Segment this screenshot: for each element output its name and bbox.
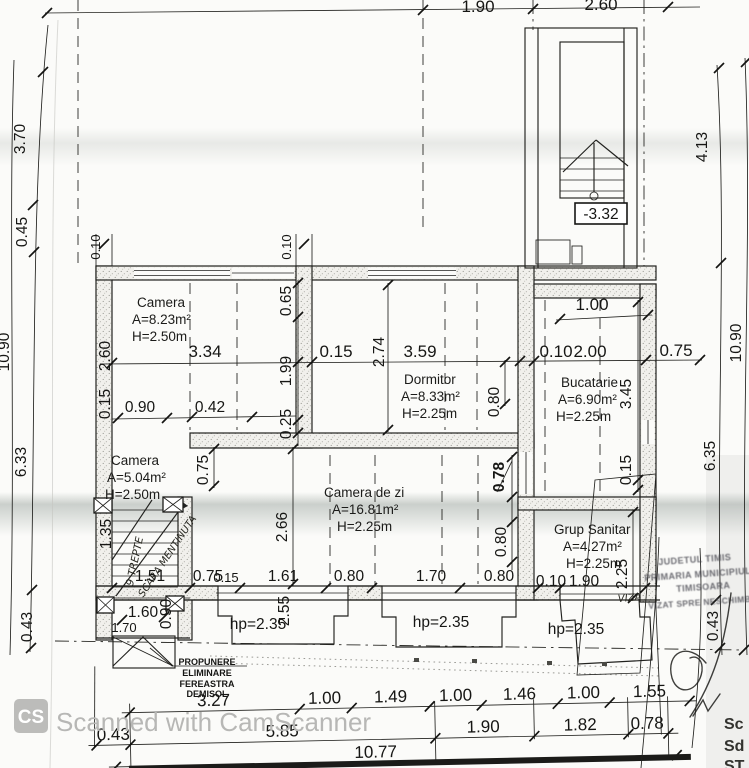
watermark-text: Scanned with CamScanner [56,707,371,737]
room-name: Dormitor [404,372,456,387]
dim-label: 0.15 [97,389,114,419]
dim-label: 0.75 [195,455,212,485]
edge-labels: Sc Sd ST [724,716,745,768]
dim-label: 1.55 [633,681,666,701]
dim-label: 2.60 [97,341,114,372]
dim-label: 1.60 [128,604,159,621]
dim-label: 1.35 [98,519,115,549]
dim-label: 2.66 [274,512,291,542]
dim-label: 0.65 [278,286,295,316]
edge-label: Sc [724,716,744,733]
dim-label: 0.10 [536,573,567,590]
dim-label: 0.43 [705,611,722,641]
dim-label: 6.35 [702,441,719,471]
dim-label: 10.90 [728,323,745,362]
room-name: Bucatarie [561,375,618,390]
dim-label: 6.33 [13,447,30,477]
dim-label: 0.80 [334,568,365,585]
dim-label: 0.15 [618,455,635,485]
room-height: H=2.25m [556,409,611,424]
dim-label: 3.59 [403,342,436,361]
dimension-lines [10,2,749,655]
dim-label: 1.70 [111,620,136,635]
level-label: -3.32 [583,206,618,223]
dim-label: 1.70 [416,568,447,585]
dim-label: 0.80 [493,527,510,558]
edge-label: Sd [724,738,744,755]
dim-label: 0.10 [88,234,103,259]
room-label-camera-2: Camera A=5.04m² H=2.50m [105,453,166,502]
proposal-line: DEMISOL [186,689,228,699]
dim-label: 0.42 [195,399,225,416]
room-name: Grup Sanitar [554,522,631,537]
dim-label: 1.90 [461,0,494,16]
proposal-line: PROPUNERE [178,657,235,667]
dim-label: 1.99 [278,356,295,386]
dim-label: 0.80 [484,568,515,585]
room-height: H=2.25m [337,519,392,534]
proposal-line: FEREASTRA [179,679,235,689]
room-area: A=8.23m² [132,312,191,327]
room-name: Camera [111,453,160,468]
dim-label: 1.90 [466,717,499,737]
floor-plan-scan: -3.32 9 TREPTE SCARA MENTINUTA [0,0,749,768]
dim-label: 10.90 [0,332,13,371]
dim-label: 2.60 [584,0,617,14]
parapet-label: hp=2.35 [548,621,604,638]
dim-label: 0.43 [19,612,36,642]
dim-label: 1.82 [563,715,596,735]
dim-label: 0.78 [630,713,663,733]
room-label-dormitor: Dormitor A=8.33m² H=2.25m [401,372,460,421]
edge-label: ST [724,758,745,768]
dim-label: 0.15 [319,342,352,361]
dim-label: 1.00 [308,688,341,708]
dim-label: 0.10 [279,234,294,259]
dim-label: 3.70 [12,124,29,155]
room-name: Camera de zi [324,485,404,500]
dim-label: 3.45 [618,379,635,409]
parapet-label: hp=2.35 [230,616,286,633]
page-edge-bar [129,754,691,768]
room-area: A=6.90m² [558,392,617,407]
dim-label: 4.13 [694,132,711,162]
struck-dim: 0.78 [491,461,512,492]
room-height: H=2.25m [566,556,621,571]
room-name: Camera [137,295,186,310]
dim-label: 1.46 [503,684,536,704]
room-label-bucatarie: Bucatarie A=6.90m² H=2.25m [556,375,618,424]
scanned-floor-plan-page: -3.32 9 TREPTE SCARA MENTINUTA [0,0,749,768]
dim-label: 1.00 [567,683,600,703]
room-height: H=2.50m [105,487,160,502]
dim-label: 0.45 [14,217,31,247]
dim-label: 10.77 [354,742,397,762]
dim-label: 1.90 [569,573,600,590]
dim-label: 1.61 [268,568,298,585]
dim-label: 0.80 [486,387,503,418]
dim-label: 1.00 [575,295,608,314]
room-height: H=2.25m [402,406,457,421]
dim-label: 1.49 [374,687,407,707]
dim-label: 1.00 [439,685,472,705]
dim-label: 0.90 [158,599,175,630]
proposal-line: ELIMINARE [182,668,232,678]
dim-label: 0.10 [539,342,572,361]
stamp-handwriting: VIZA [617,592,642,605]
room-label-grup-sanitar: Grup Sanitar A=4.27m² H=2.25m [554,522,631,571]
proposal-note: PROPUNERE ELIMINARE FEREASTRA DEMISOL [178,657,235,699]
dim-label: 0.90 [125,399,156,416]
dim-label: 2.74 [371,337,388,368]
fixture [572,246,582,264]
fixture [536,240,570,264]
dim-label: 0.15 [213,570,238,585]
room-area: A=5.04m² [107,470,166,485]
room-height: H=2.50m [132,329,187,344]
dim-label: 2.00 [573,342,606,361]
room-area: A=16.81m² [332,502,399,517]
room-area: A=8.33m² [401,389,460,404]
parapet-label: hp=2.35 [413,614,469,631]
dim-label: 0.25 [278,409,295,439]
room-label-camera-1: Camera A=8.23m² H=2.50m [132,295,191,344]
dim-label: 1.51 [135,568,165,585]
room-area: A=4.27m² [563,539,622,554]
cs-badge-label: CS [18,707,44,728]
dim-label: 3.34 [188,342,221,361]
dim-label: 0.75 [659,341,692,360]
